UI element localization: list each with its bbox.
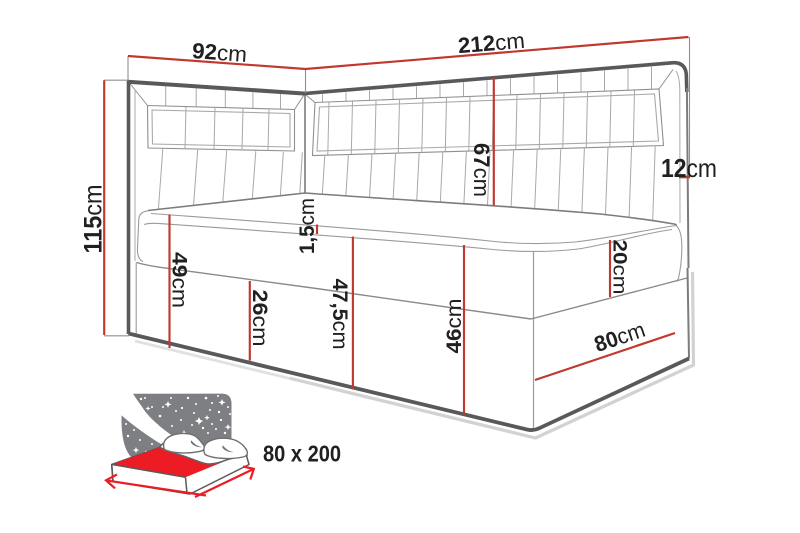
svg-text:1,5cm: 1,5cm [295, 198, 319, 254]
svg-text:46cm: 46cm [442, 299, 466, 354]
svg-text:115cm: 115cm [80, 185, 108, 254]
svg-text:20cm: 20cm [609, 240, 631, 295]
svg-text:67cm: 67cm [469, 143, 494, 197]
svg-text:26cm: 26cm [248, 290, 272, 347]
svg-text:49cm: 49cm [168, 252, 192, 308]
svg-text:92cm: 92cm [191, 38, 248, 67]
svg-text:80 x 200: 80 x 200 [263, 441, 341, 467]
svg-text:212cm: 212cm [457, 28, 526, 59]
svg-text:47,5cm: 47,5cm [328, 279, 352, 350]
svg-text:12cm: 12cm [661, 153, 717, 183]
